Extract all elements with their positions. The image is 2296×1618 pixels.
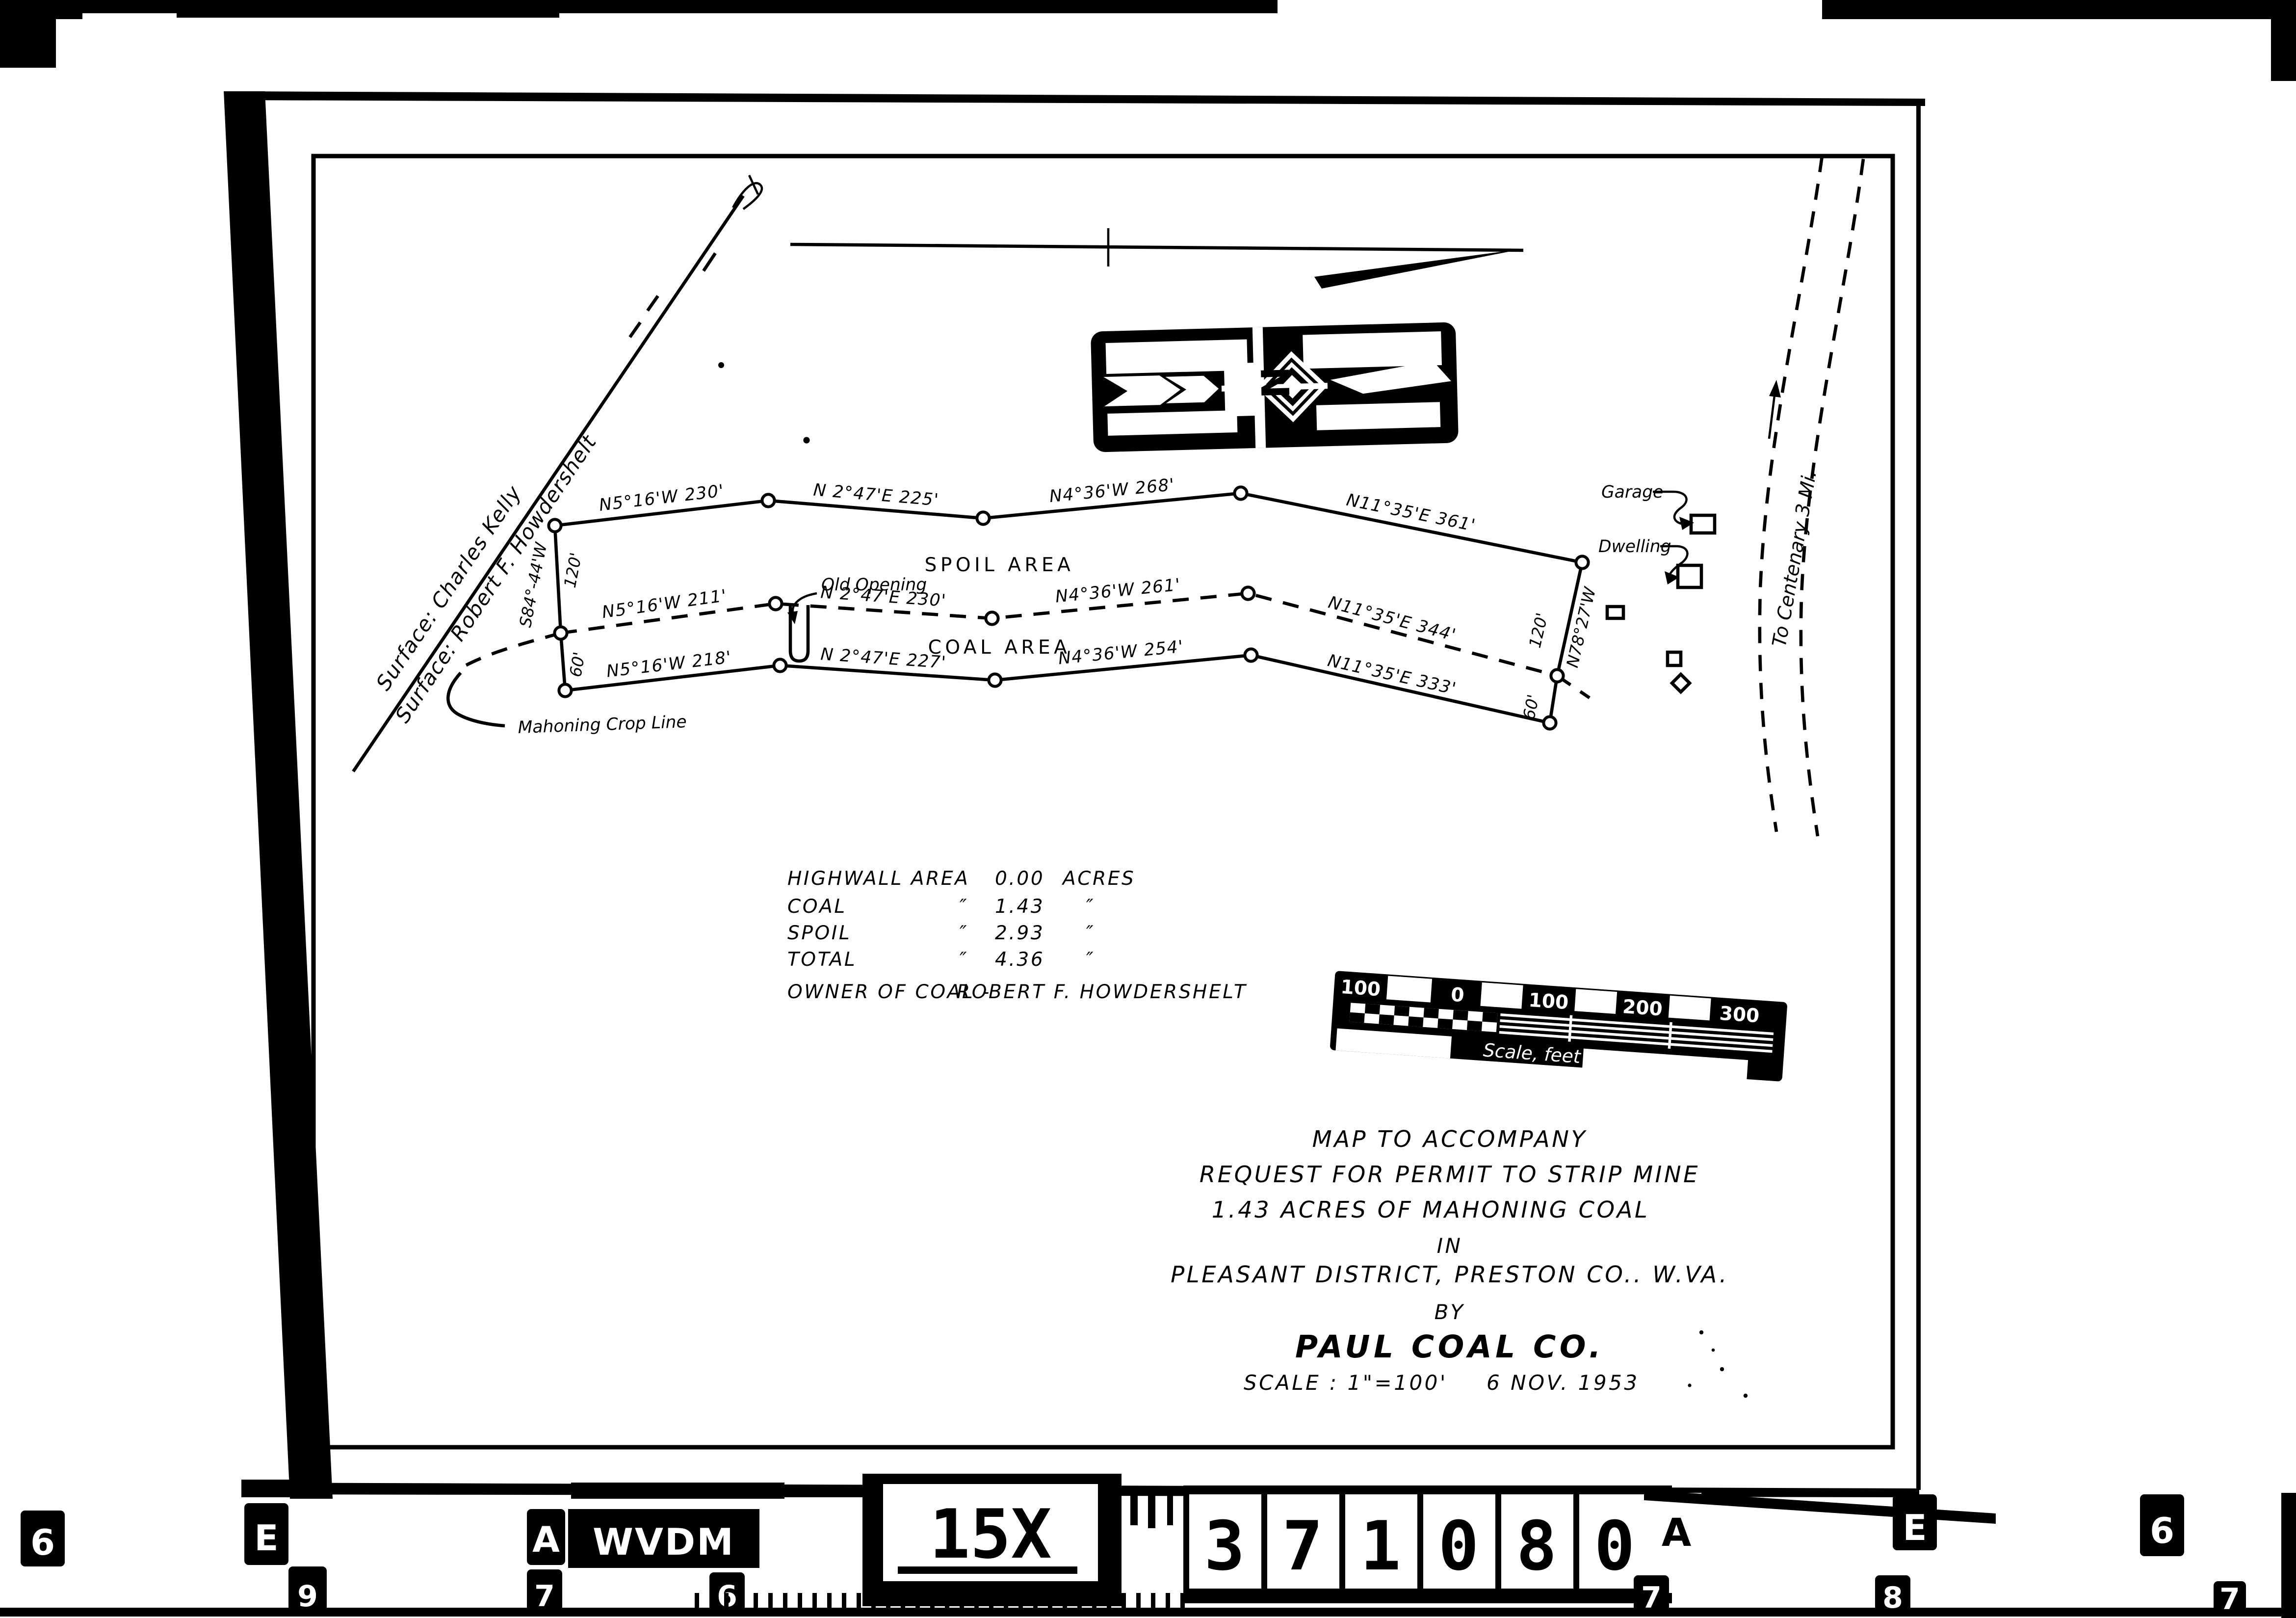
- company-name: PAUL COAL CO.: [1295, 1329, 1604, 1365]
- table-row-value: 4.36: [995, 949, 1044, 971]
- film-corner-blob: [0, 0, 82, 68]
- film-top-band-right: [1822, 0, 2296, 19]
- table-row-label: TOTAL: [787, 949, 857, 971]
- edge-mark: A: [1662, 1511, 1691, 1555]
- film-top-band: [82, 0, 1278, 13]
- owner-of-coal-value: ROBERT F. HOWDERSHELT: [957, 981, 1247, 1003]
- old-opening-label: Old Opening: [821, 575, 927, 595]
- table-ditto: ″: [960, 949, 968, 971]
- film-code-label: WVDM: [593, 1520, 735, 1564]
- map-scale-note: SCALE : 1"=100': [1244, 1371, 1448, 1395]
- table-row-value: 2.93: [995, 922, 1044, 944]
- film-right-bar: [2281, 1493, 2296, 1618]
- serial-digit: 1: [1360, 1507, 1401, 1586]
- title-line-1: MAP TO ACCOMPANY: [1312, 1126, 1588, 1152]
- edge-mark: 7: [534, 1579, 555, 1614]
- edge-mark: 7: [2219, 1582, 2240, 1617]
- north-arrow-white-patch: [1316, 402, 1440, 430]
- ink-speck: [718, 362, 724, 368]
- scale-tick-label: 100: [1528, 989, 1569, 1014]
- spoil-area-label: SPOIL AREA: [925, 554, 1074, 576]
- magnification-underline: [898, 1566, 1077, 1574]
- film-tick: [1148, 1487, 1155, 1528]
- edge-mark: 6: [2150, 1510, 2174, 1551]
- scale-bar-blotch: [1669, 996, 1711, 1021]
- page-bottom-corner-smudge: [241, 1480, 318, 1497]
- table-row-value: 0.00: [995, 868, 1044, 890]
- scale-bar-blotch: [1386, 976, 1432, 1002]
- table-row-unit: ACRES: [1061, 868, 1135, 890]
- magnification-label: 15X: [929, 1495, 1051, 1574]
- edge-mark: 6: [30, 1522, 55, 1563]
- scale-tick-label: 100: [1340, 976, 1381, 1001]
- film-corner-right: [2271, 19, 2296, 81]
- edge-mark: 8: [1882, 1581, 1903, 1615]
- coal-area-label: COAL AREA: [928, 637, 1071, 659]
- scale-tick-label: 200: [1622, 996, 1663, 1021]
- title-line-3: 1.43 ACRES OF MAHONING COAL: [1212, 1196, 1650, 1223]
- title-line-6: BY: [1435, 1300, 1465, 1324]
- scale-bar-blotch: [1480, 982, 1523, 1009]
- edge-mark: E: [254, 1517, 278, 1559]
- paper-sheet: [224, 88, 1931, 1502]
- ink-speck: [803, 437, 809, 443]
- film-top-band-smudge: [177, 12, 559, 18]
- scale-bar-blotch: [1574, 989, 1617, 1014]
- edge-mark: 7: [1641, 1581, 1662, 1615]
- table-ditto: ″: [1086, 922, 1095, 944]
- title-line-4: IN: [1437, 1234, 1463, 1258]
- title-line-5: PLEASANT DISTRICT, PRESTON CO.. W.VA.: [1171, 1261, 1729, 1288]
- table-ditto: ″: [960, 922, 968, 944]
- table-row-label: SPOIL: [787, 922, 851, 944]
- scanned-mine-permit-map: Surface: Charles Kelly Surface: Robert F…: [0, 0, 2296, 1618]
- edge-mark: 9: [297, 1579, 318, 1614]
- serial-digit: 0: [1594, 1507, 1635, 1586]
- north-arrow-white-patch: [1303, 331, 1442, 369]
- table-row-label: HIGHWALL AREA: [787, 868, 969, 890]
- serial-digit: 0: [1438, 1507, 1479, 1586]
- table-ditto: ″: [960, 896, 968, 918]
- table-row-value: 1.43: [995, 896, 1044, 918]
- table-row-label: COAL: [787, 896, 847, 918]
- serial-digit: 8: [1516, 1507, 1557, 1586]
- film-streak: [571, 1483, 784, 1499]
- film-tick: [1130, 1490, 1138, 1525]
- table-ditto: ″: [1086, 949, 1095, 971]
- page-right-edge: [1916, 106, 1921, 1490]
- serial-digit: 7: [1282, 1507, 1323, 1586]
- table-ditto: ″: [1086, 896, 1095, 918]
- film-tick: [1167, 1493, 1173, 1525]
- map-date: 6 NOV. 1953: [1487, 1371, 1640, 1395]
- north-arrow-white-patch: [1107, 410, 1237, 436]
- north-letter: N: [1252, 366, 1297, 399]
- film-bottom-line: [0, 1608, 2296, 1617]
- scale-tick-label: 0: [1450, 984, 1465, 1007]
- film-streak: [780, 1487, 868, 1497]
- north-arrow: N: [1091, 322, 1459, 452]
- edge-mark: A: [532, 1519, 560, 1560]
- title-line-2: REQUEST FOR PERMIT TO STRIP MINE: [1200, 1161, 1700, 1188]
- paper-background: [224, 88, 1931, 1502]
- edge-mark: E: [1903, 1507, 1927, 1548]
- scale-tick-label: 300: [1719, 1003, 1760, 1028]
- serial-digit: 3: [1204, 1507, 1245, 1586]
